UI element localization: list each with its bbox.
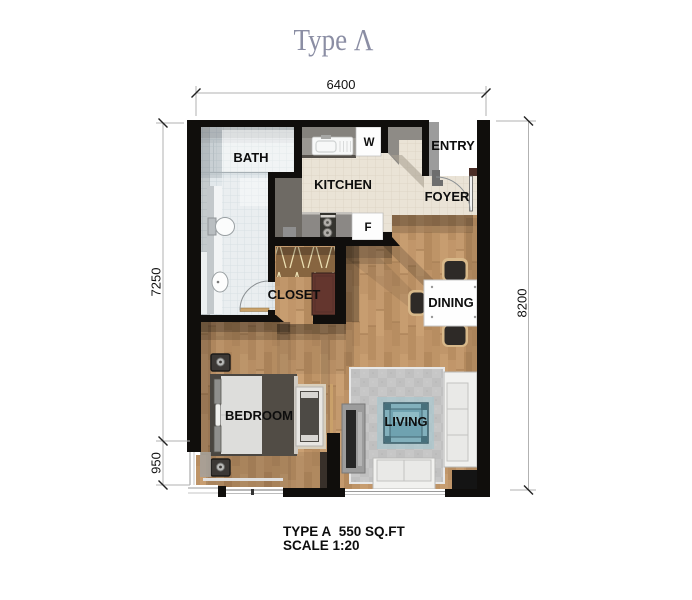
svg-text:7250: 7250 — [149, 268, 164, 297]
svg-text:BATH: BATH — [233, 150, 268, 165]
svg-text:BEDROOM: BEDROOM — [225, 408, 293, 423]
svg-text:950: 950 — [149, 452, 164, 474]
svg-text:SCALE 1:20: SCALE 1:20 — [283, 538, 360, 553]
svg-text:W: W — [364, 137, 375, 149]
svg-text:Type Λ: Type Λ — [294, 22, 374, 57]
svg-text:ENTRY: ENTRY — [431, 138, 475, 153]
svg-text:TYPE A 550 SQ.FT: TYPE A 550 SQ.FT — [283, 524, 406, 539]
svg-text:FOYER: FOYER — [425, 189, 470, 204]
svg-text:6400: 6400 — [327, 77, 356, 92]
svg-text:LIVING: LIVING — [384, 414, 427, 429]
svg-text:KITCHEN: KITCHEN — [314, 177, 372, 192]
svg-text:CLOSET: CLOSET — [268, 287, 321, 302]
svg-text:8200: 8200 — [515, 289, 530, 318]
svg-text:DINING: DINING — [428, 295, 474, 310]
svg-text:F: F — [364, 222, 371, 234]
